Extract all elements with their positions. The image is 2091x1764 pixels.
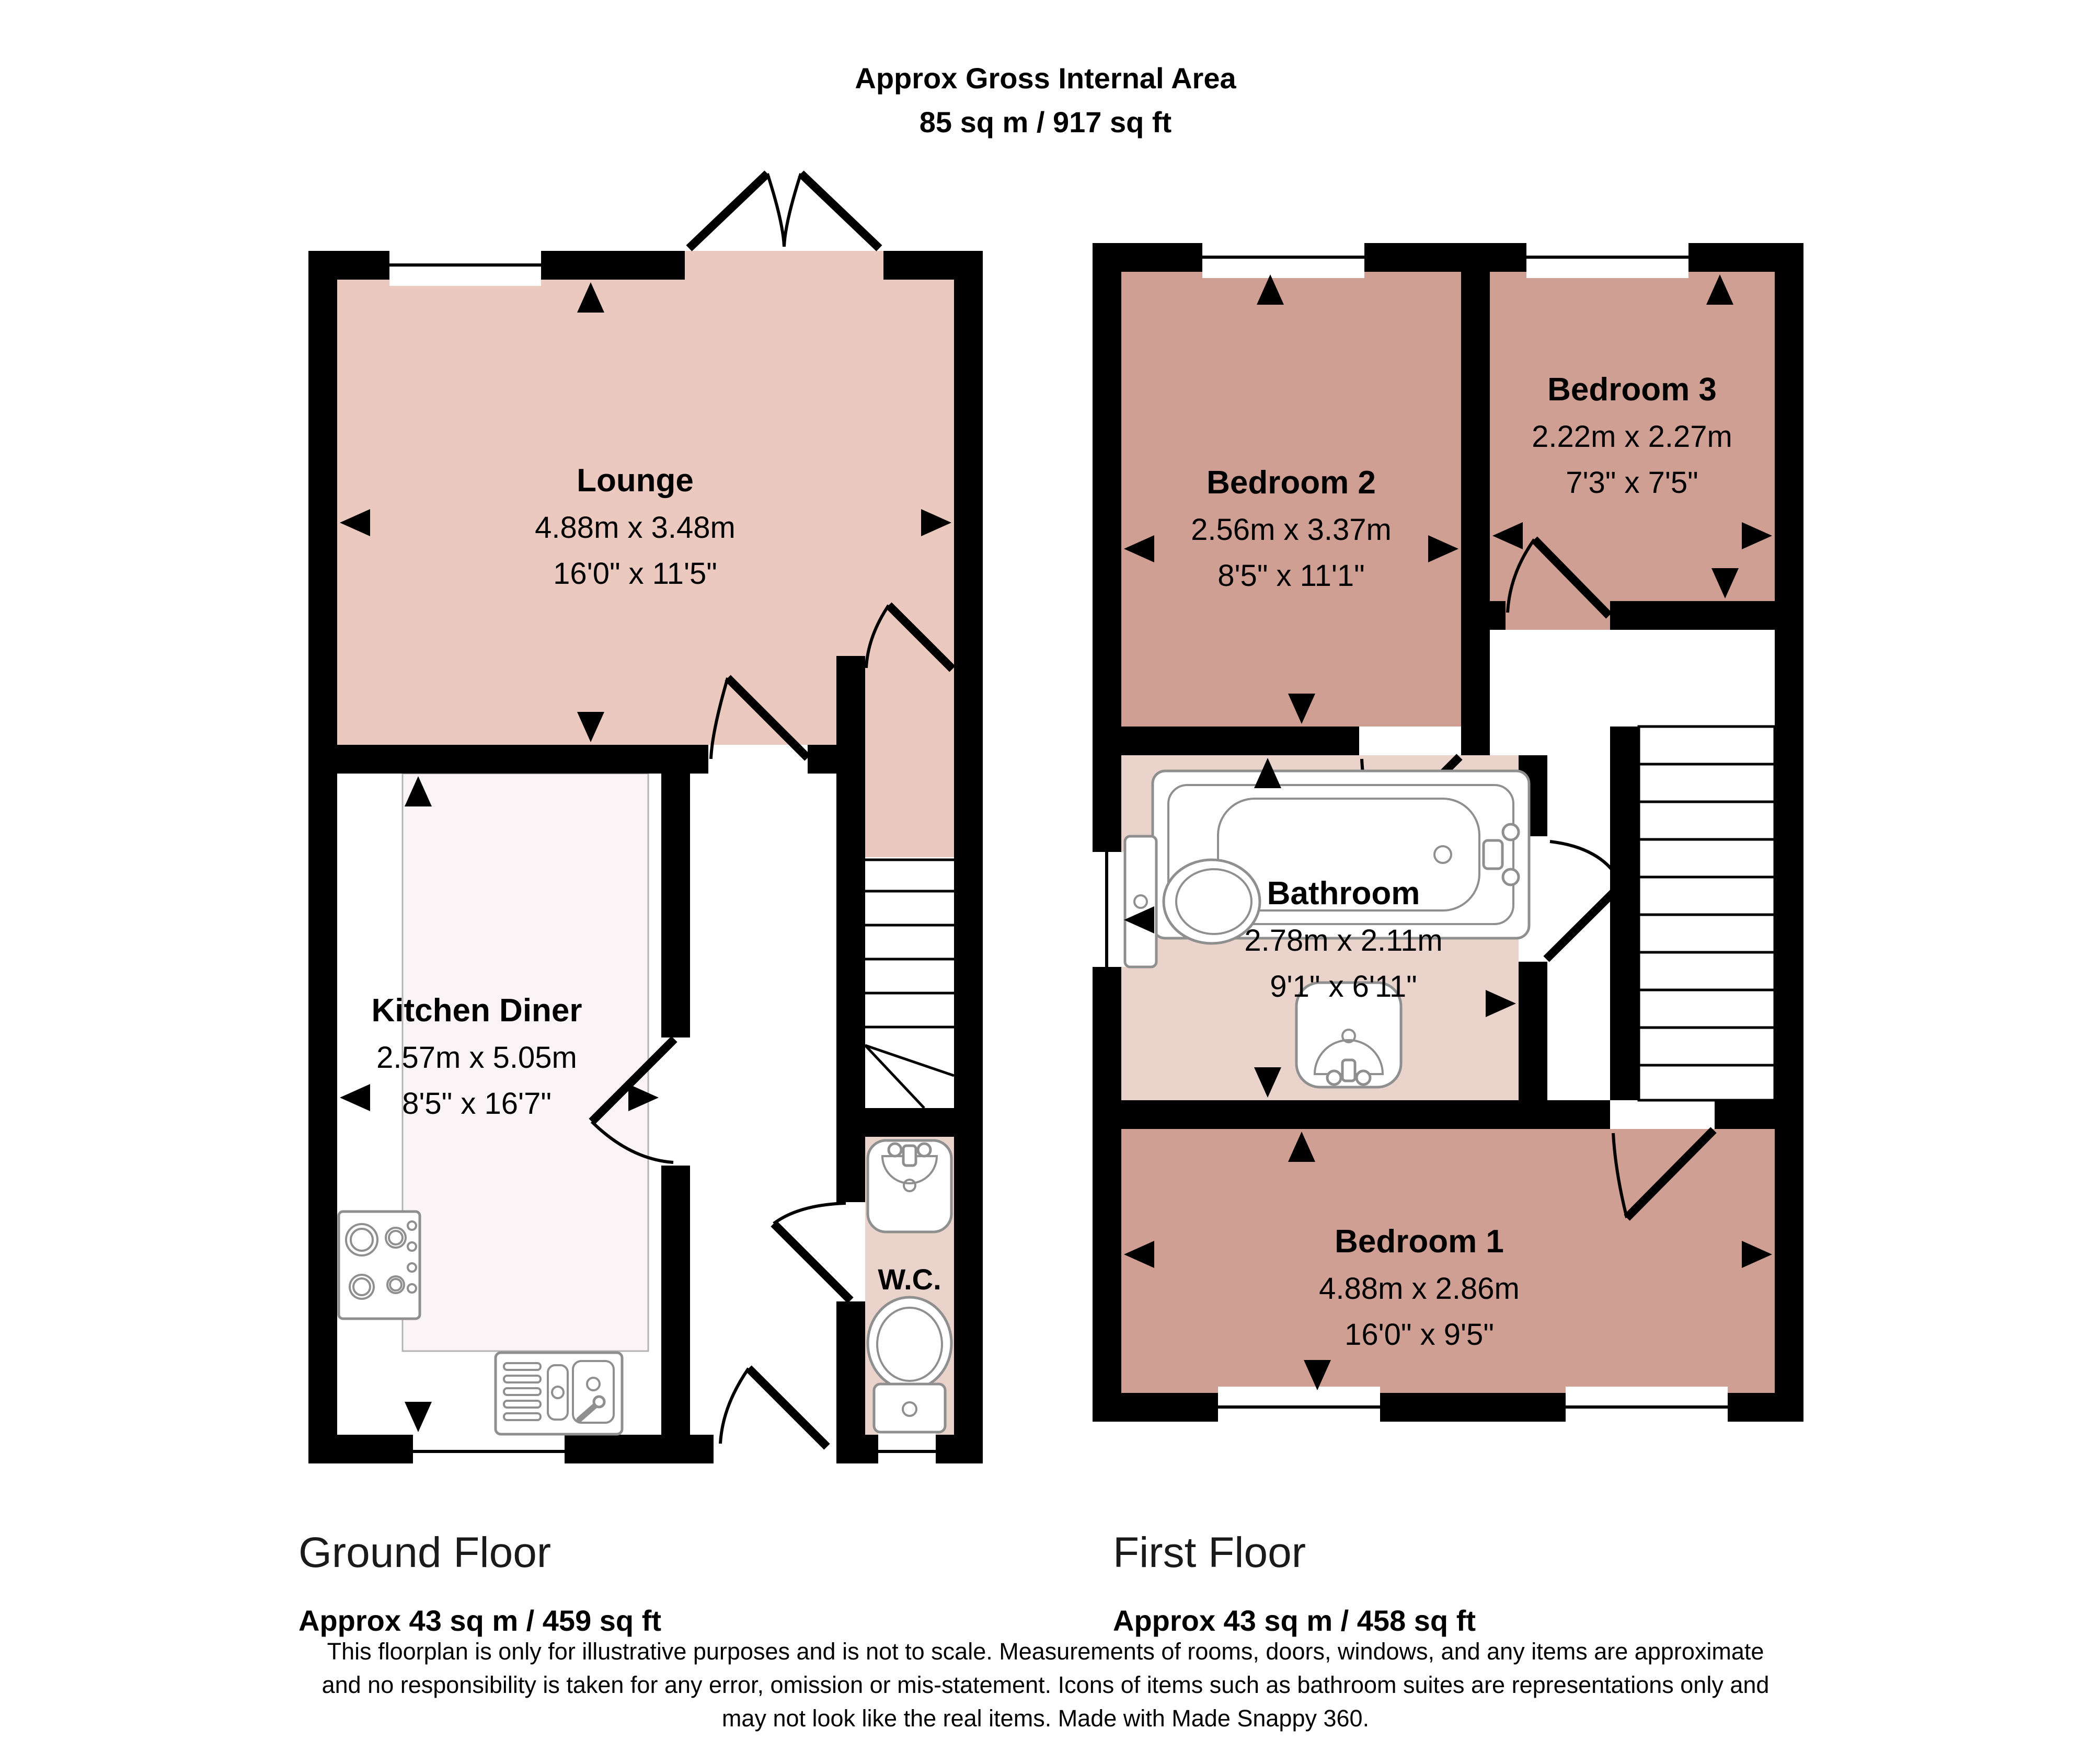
room-name: Bedroom 1 xyxy=(1319,1226,1520,1258)
bedroom1-window-right xyxy=(1566,1387,1728,1428)
disclaimer-line3: may not look like the real items. Made w… xyxy=(322,1702,1770,1735)
bedroom2-label: Bedroom 2 2.56m x 3.37m 8'5" x 11'1" xyxy=(1191,467,1392,591)
room-name: Kitchen Diner xyxy=(371,995,582,1027)
floorplan-page: Approx Gross Internal Area 85 sq m / 917… xyxy=(0,0,2091,1764)
page-title-line2: 85 sq m / 917 sq ft xyxy=(855,100,1236,144)
bedroom1-window-left xyxy=(1218,1387,1380,1428)
bedroom3-window xyxy=(1526,237,1688,278)
french-doors xyxy=(689,174,879,248)
hob-icon xyxy=(339,1212,420,1319)
lounge-window xyxy=(389,245,541,286)
kitchen-label: Kitchen Diner 2.57m x 5.05m 8'5" x 16'7" xyxy=(371,995,582,1119)
disclaimer-line1: This floorplan is only for illustrative … xyxy=(322,1635,1770,1668)
room-name: Lounge xyxy=(535,465,736,497)
disclaimer-line2: and no responsibility is taken for any e… xyxy=(322,1668,1770,1702)
room-imperial: 16'0" x 11'5" xyxy=(535,559,736,589)
bedroom1-label: Bedroom 1 4.88m x 2.86m 16'0" x 9'5" xyxy=(1319,1226,1520,1350)
room-imperial: 9'1" x 6'11" xyxy=(1244,972,1442,1002)
bathroom-window xyxy=(1086,852,1128,967)
lounge-label: Lounge 4.88m x 3.48m 16'0" x 11'5" xyxy=(535,465,736,589)
page-title-line1: Approx Gross Internal Area xyxy=(855,56,1236,100)
wc-toilet-icon xyxy=(868,1297,951,1432)
entry-hall-floor xyxy=(865,745,954,857)
ground-floor-area: Approx 43 sq m / 459 sq ft xyxy=(298,1604,661,1638)
stairs-first xyxy=(1639,727,1775,1100)
kitchen-window xyxy=(413,1431,565,1472)
room-imperial: 8'5" x 16'7" xyxy=(371,1089,582,1119)
room-imperial: 8'5" x 11'1" xyxy=(1191,561,1392,591)
room-metric: 2.22m x 2.27m xyxy=(1532,422,1732,452)
french-door-gap-floor xyxy=(685,251,883,280)
wc-window xyxy=(878,1431,936,1472)
page-title: Approx Gross Internal Area 85 sq m / 917… xyxy=(855,56,1236,144)
kitchen-sink-icon xyxy=(496,1353,622,1434)
room-metric: 2.56m x 3.37m xyxy=(1191,515,1392,545)
room-imperial: 7'3" x 7'5" xyxy=(1532,468,1732,498)
room-metric: 4.88m x 3.48m xyxy=(535,513,736,543)
ground-floor-title: Ground Floor xyxy=(298,1531,551,1574)
bedroom3-label: Bedroom 3 2.22m x 2.27m 7'3" x 7'5" xyxy=(1532,374,1732,498)
room-name: W.C. xyxy=(878,1263,941,1296)
first-floor-title: First Floor xyxy=(1113,1531,1306,1574)
room-name: Bedroom 2 xyxy=(1191,467,1392,499)
room-name: Bedroom 3 xyxy=(1532,374,1732,406)
back-door xyxy=(720,1368,827,1447)
bedroom2-window xyxy=(1202,237,1364,278)
wc-label: W.C. xyxy=(878,1263,941,1296)
room-metric: 2.78m x 2.11m xyxy=(1244,926,1442,956)
wc-sink-icon xyxy=(868,1140,951,1232)
stairs-ground xyxy=(865,860,954,1108)
room-metric: 2.57m x 5.05m xyxy=(371,1043,582,1073)
wc-door xyxy=(774,1203,851,1300)
room-imperial: 16'0" x 9'5" xyxy=(1319,1320,1520,1350)
room-name: Bathroom xyxy=(1244,878,1442,910)
floorplan-drawing xyxy=(0,0,2091,1764)
first-floor-area: Approx 43 sq m / 458 sq ft xyxy=(1113,1604,1476,1638)
room-metric: 4.88m x 2.86m xyxy=(1319,1274,1520,1304)
disclaimer: This floorplan is only for illustrative … xyxy=(322,1635,1770,1735)
bathroom-label: Bathroom 2.78m x 2.11m 9'1" x 6'11" xyxy=(1244,878,1442,1002)
